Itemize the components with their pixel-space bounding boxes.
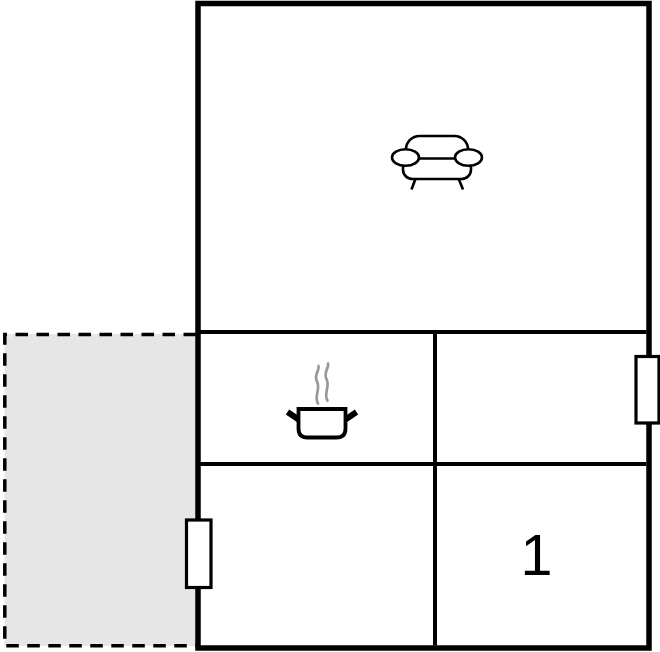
terrace-area xyxy=(5,334,197,646)
window-marker-left-icon xyxy=(187,520,212,588)
floor-plan-canvas: 1 xyxy=(0,0,660,652)
floor-plan: 1 xyxy=(0,0,660,652)
building-outline xyxy=(198,4,649,649)
room-number-label: 1 xyxy=(521,523,553,587)
cooking-pot-icon xyxy=(288,409,357,438)
window-marker-right-icon xyxy=(636,357,659,424)
building-walls xyxy=(198,4,649,649)
pot-body xyxy=(299,409,346,438)
terrace-fill xyxy=(5,334,197,646)
sofa-armrest-right xyxy=(455,149,482,165)
sofa-armrest-left xyxy=(392,149,419,165)
